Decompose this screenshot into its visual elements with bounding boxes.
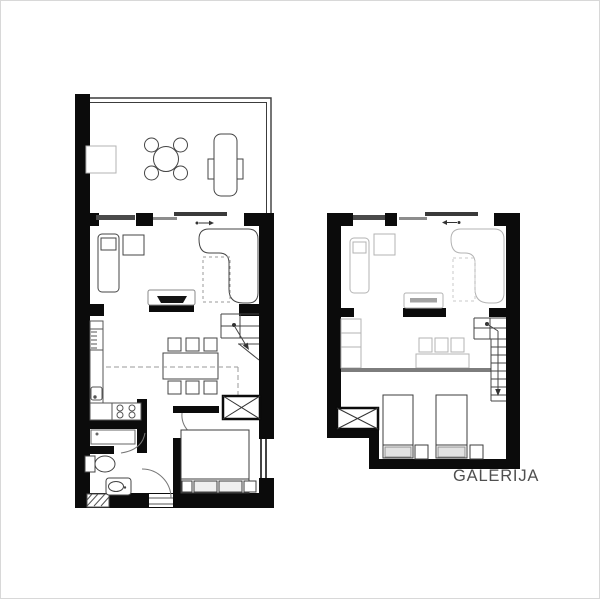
tv-faded — [410, 298, 437, 303]
toilet-tank — [85, 456, 95, 472]
sun-lounger — [214, 134, 237, 196]
gallery-plan-label: GALERIJA — [453, 467, 543, 486]
chaise-pillow — [101, 238, 116, 250]
living-window — [96, 215, 135, 220]
dining-chair — [186, 338, 199, 351]
gallery-wardrobe-box — [337, 408, 378, 429]
terrace-round-table — [154, 147, 179, 172]
gallery-edge-railing — [341, 368, 491, 372]
dining-chair-faded — [451, 338, 464, 352]
bedroom-window — [260, 439, 267, 478]
dining-chair — [204, 381, 217, 394]
corner-sofa-faded — [451, 229, 504, 303]
side-table — [123, 235, 144, 255]
toilet-bowl — [95, 456, 115, 472]
dining-chair — [204, 338, 217, 351]
dining-chair — [168, 381, 181, 394]
bed-pillow — [385, 447, 411, 457]
shower-tray — [91, 430, 135, 444]
terrace-chair — [174, 138, 188, 152]
double-bed — [181, 430, 256, 493]
dining-chair — [186, 381, 199, 394]
tv — [157, 296, 187, 303]
dining-table-faded — [416, 354, 469, 368]
main-floor-plan — [75, 94, 274, 508]
terrace-chair — [145, 138, 159, 152]
terrace-furniture — [86, 134, 243, 196]
gallery-sliding-door — [399, 212, 478, 225]
living-room-furniture — [98, 229, 258, 305]
kitchen-faded — [341, 319, 361, 368]
bed-pillow — [438, 447, 465, 457]
terrace-railing — [90, 98, 271, 213]
floor-plan-image: GALERIJA — [0, 0, 600, 599]
terrace-chair — [174, 166, 188, 180]
main-stairs — [221, 314, 259, 360]
bathroom — [85, 430, 135, 495]
gallery-window — [353, 215, 385, 220]
washbasin-bowl — [109, 482, 124, 492]
dining-area — [163, 338, 218, 394]
wardrobe-box — [223, 396, 260, 419]
terrace-chair — [145, 166, 159, 180]
gallery-stairs — [474, 318, 506, 401]
bed-pillow — [194, 481, 217, 492]
nightstand — [470, 445, 483, 459]
kitchen — [90, 321, 141, 420]
bed-side-table — [182, 481, 192, 492]
hob — [112, 403, 141, 420]
bed-side-table — [244, 481, 256, 492]
terrace-sliding-door — [153, 212, 227, 225]
floor-plan-drawing — [1, 1, 600, 599]
dining-table — [163, 353, 218, 379]
gallery-plan — [327, 212, 520, 469]
nightstand — [415, 445, 428, 459]
dining-chair-faded — [419, 338, 432, 352]
corner-sofa — [199, 229, 258, 303]
gallery-beds — [383, 395, 483, 459]
void-living-furniture-faded — [341, 229, 504, 368]
planter — [86, 146, 116, 173]
chaise-pillow-faded — [353, 242, 366, 253]
dining-chair — [168, 338, 181, 351]
bed-pillow — [219, 481, 242, 492]
dining-chair-faded — [435, 338, 448, 352]
kitchen-sink — [91, 387, 102, 400]
side-table-faded — [374, 234, 395, 255]
entrance-opening — [149, 494, 173, 507]
sofa-rug — [203, 257, 230, 302]
sofa-rug-faded — [453, 258, 475, 301]
